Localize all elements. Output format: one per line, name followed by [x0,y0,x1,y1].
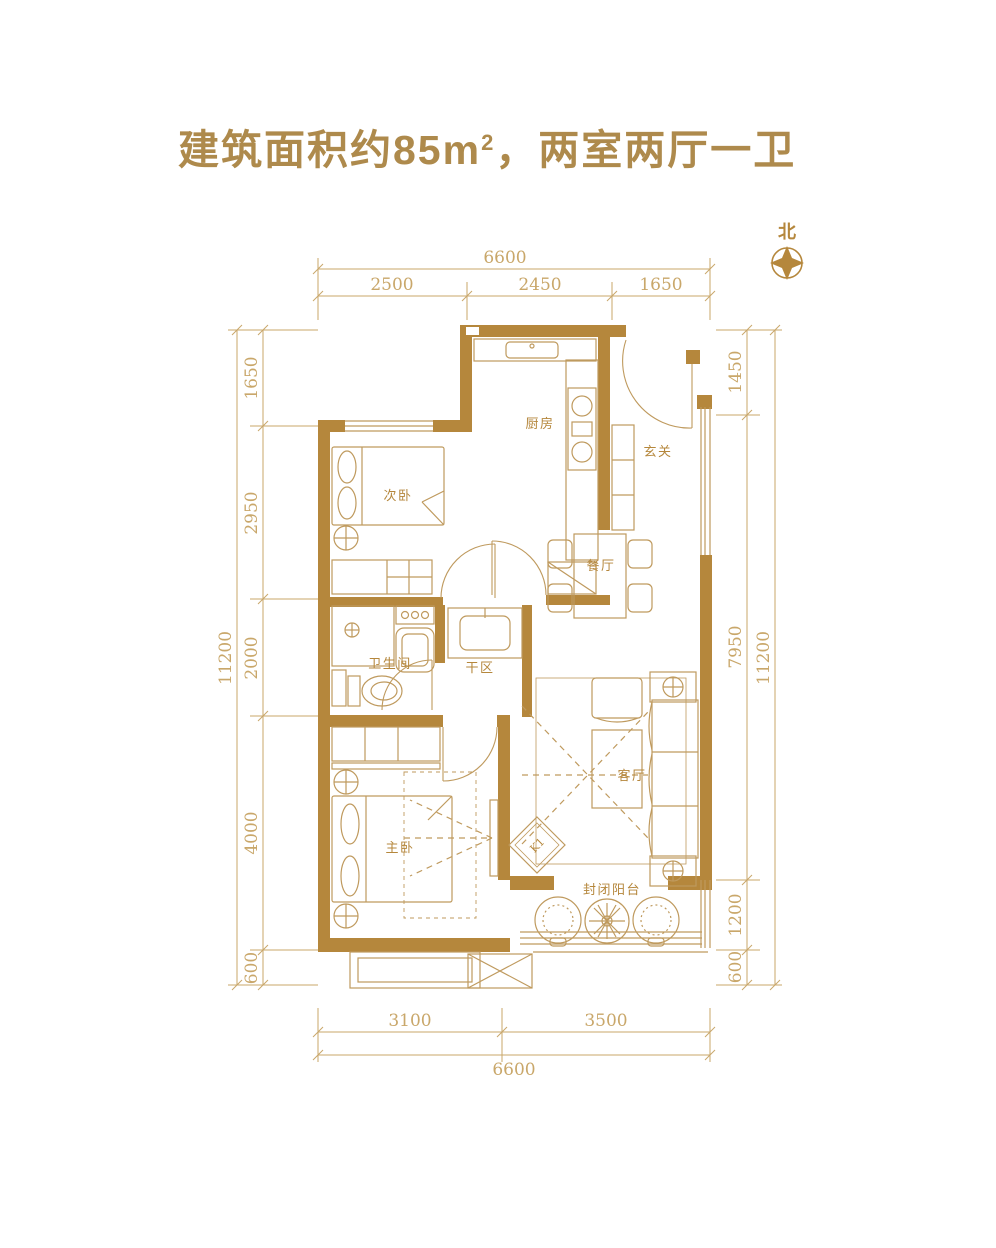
dimension-labels: 6600 2500 2450 1650 3100 3500 6600 11200… [216,248,774,1080]
room-labels: 次卧 厨房 玄关 餐厅 卫生间 干区 客厅 主卧 封闭阳台 K1 [368,416,672,898]
room-label-column-mark: K1 [527,835,547,855]
master-wardrobe [332,727,440,769]
kitchen-stove [566,360,598,560]
bathroom-toilet [348,676,402,706]
foyer-cabinet [612,425,634,530]
master-bay-window [350,952,480,988]
north-compass-icon: 北 [770,222,804,280]
master-bedroom-door [443,727,497,781]
dim-top-seg-2: 2450 [518,275,561,295]
dim-bottom-seg-1: 3100 [388,1011,431,1031]
room-label-dry-area: 干区 [465,661,494,676]
dim-bottom-seg-2: 3500 [584,1011,627,1031]
room-label-foyer: 玄关 [643,445,672,460]
bathroom-cabinet [332,670,346,706]
master-tv-sightlines [404,800,492,876]
master-nightstands [334,770,358,928]
living-sofa [649,700,698,858]
dim-bottom-total: 6600 [492,1060,535,1080]
second-bedroom-door [441,544,495,598]
room-label-balcony: 封闭阳台 [583,883,641,898]
dim-top-seg-3: 1650 [639,275,682,295]
balcony-side-window [701,880,710,948]
dining-window [701,407,710,555]
room-label-bathroom: 卫生间 [368,657,412,672]
bedroom-window [345,421,433,431]
floorplan-drawing: 北 [0,0,996,1248]
kitchen-sink-counter [474,339,596,361]
room-label-kitchen: 厨房 [525,416,554,432]
room-label-dining: 餐厅 [586,558,615,574]
room-label-master-bedroom: 主卧 [385,841,414,856]
kitchen-door [492,541,546,595]
living-end-tables [650,672,696,886]
room-label-second-bedroom: 次卧 [383,488,412,504]
dim-right-seg-3: 1200 [726,893,746,936]
dim-right-seg-4: 600 [726,951,746,983]
floorplan-page: 建筑面积约85m2，两室两厅一卫 北 [0,0,996,1248]
dim-right-seg-2: 7950 [726,625,746,668]
second-bedroom-bed [332,447,444,525]
dim-right-seg-1: 1450 [726,350,746,393]
north-label: 北 [778,222,796,243]
entry-door [623,340,692,428]
dining-table [574,534,626,618]
dim-left-seg-4: 4000 [242,811,262,854]
room-label-living: 客厅 [617,768,646,784]
dim-left-seg-5: 600 [242,952,262,984]
living-rug [536,678,686,864]
dim-left-total: 11200 [216,631,236,685]
balcony-table [585,899,629,943]
living-armchair [592,678,642,722]
dim-left-seg-1: 1650 [242,356,262,399]
dim-top-seg-1: 2500 [370,275,413,295]
dim-right-total: 11200 [754,631,774,685]
dim-top-total: 6600 [483,248,526,268]
dry-area-sink [448,608,522,658]
second-bedroom-dresser [332,560,432,594]
dim-left-seg-2: 2950 [242,491,262,534]
ac-platform [468,954,532,988]
master-rug [404,772,476,918]
dim-left-seg-3: 2000 [242,636,262,679]
second-bedroom-side-table [334,526,358,550]
